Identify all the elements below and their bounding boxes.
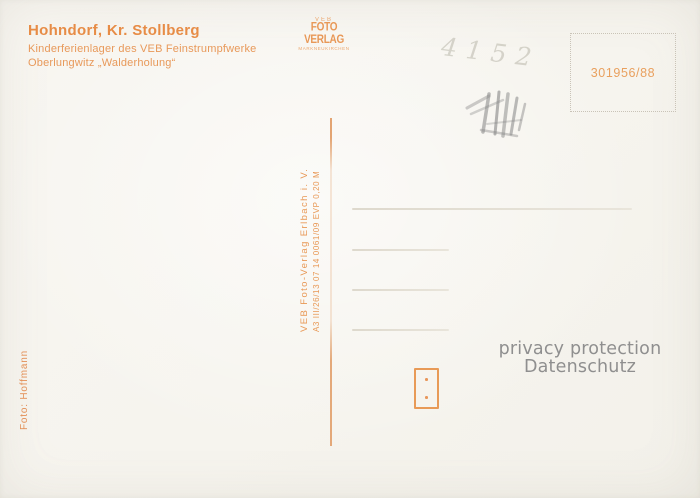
stamp-box-number: 301956/88 xyxy=(591,66,656,80)
caption-title: Hohndorf, Kr. Stollberg xyxy=(28,22,257,39)
center-divider-line xyxy=(330,118,332,446)
imprint-print-code-line: A3 III/26/13 07 14 0061/09 EVP 0,20 M xyxy=(312,140,321,332)
caption-block: Hohndorf, Kr. Stollberg Kinderferienlage… xyxy=(28,22,257,70)
photo-credit: Foto: Hoffmann xyxy=(19,322,30,430)
privacy-watermark: privacy protection Datenschutz xyxy=(492,340,668,376)
pencil-scribble-icon xyxy=(459,80,537,142)
postal-marker-dot xyxy=(425,396,428,399)
address-line xyxy=(352,249,449,251)
address-line xyxy=(352,208,632,210)
caption-subtitle-2: Oberlungwitz „Walderholung“ xyxy=(28,57,257,71)
caption-subtitle-1: Kinderferienlager des VEB Feinstrumpfwer… xyxy=(28,43,257,57)
postal-marker-box xyxy=(414,368,439,409)
postal-marker-dot xyxy=(425,378,428,381)
address-line xyxy=(352,289,449,291)
publisher-logo-name: FOTO VERLAG xyxy=(291,21,357,46)
privacy-watermark-line1: privacy protection xyxy=(492,340,668,358)
imprint-publisher-line: VEB Foto-Verlag Erlbach i. V. xyxy=(299,140,310,332)
publisher-logo: VEB FOTO VERLAG MARKNEUKIRCHEN xyxy=(291,17,357,51)
address-line xyxy=(352,329,449,331)
publisher-logo-subtext: MARKNEUKIRCHEN xyxy=(291,46,357,51)
privacy-watermark-line2: Datenschutz xyxy=(492,358,668,376)
stamp-box: 301956/88 xyxy=(570,33,676,112)
